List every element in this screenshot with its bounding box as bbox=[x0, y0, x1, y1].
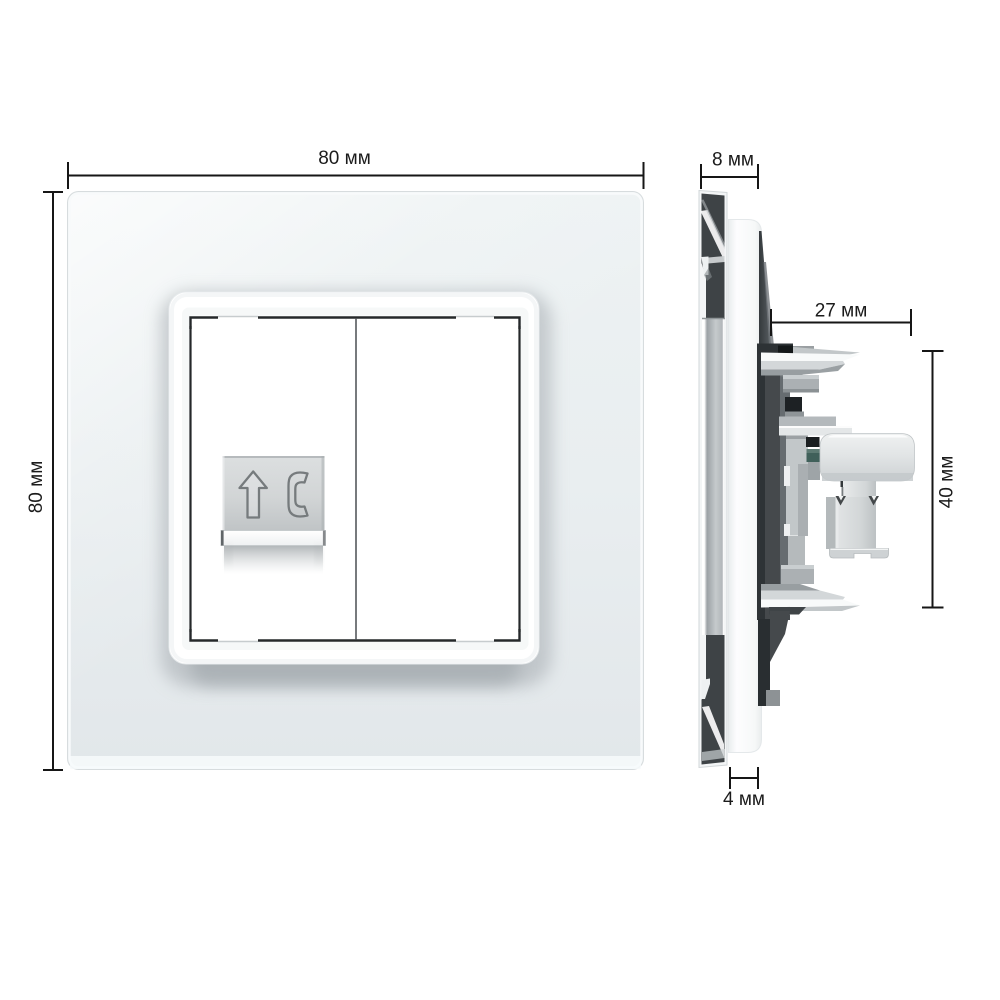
svg-text:8 мм: 8 мм bbox=[712, 150, 754, 171]
svg-text:80 мм: 80 мм bbox=[26, 461, 47, 514]
svg-text:40 мм: 40 мм bbox=[937, 456, 958, 509]
svg-text:4 мм: 4 мм bbox=[723, 789, 765, 810]
svg-text:80 мм: 80 мм bbox=[318, 148, 371, 169]
svg-text:27 мм: 27 мм bbox=[815, 301, 868, 322]
